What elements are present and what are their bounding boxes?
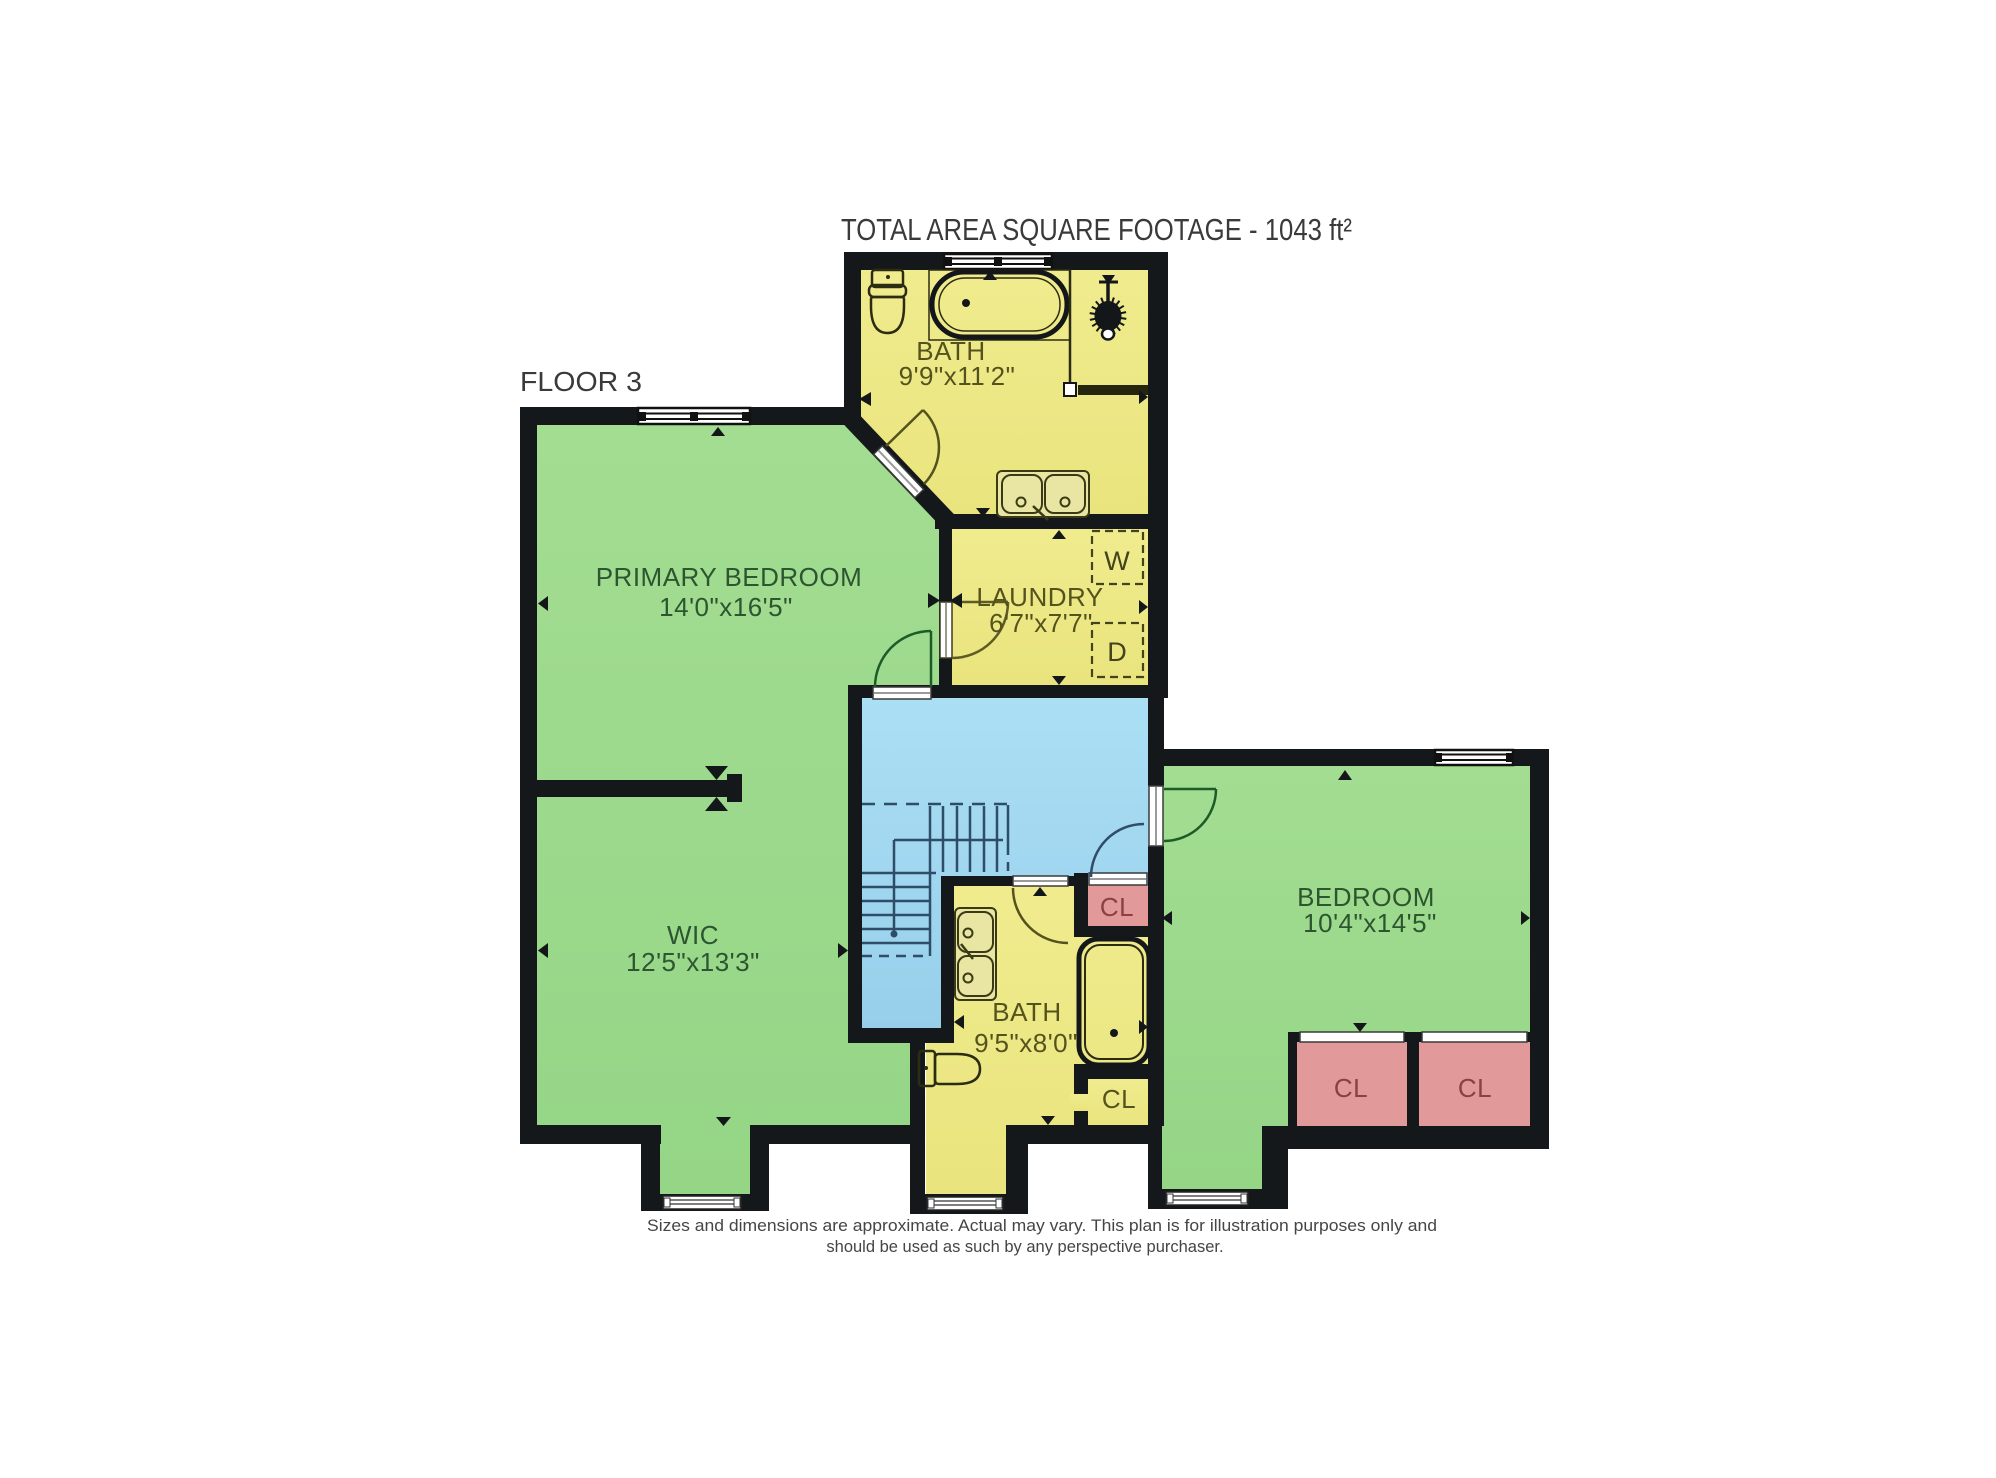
svg-text:10'4"x14'5": 10'4"x14'5" — [1303, 908, 1437, 938]
svg-text:PRIMARY BEDROOM: PRIMARY BEDROOM — [596, 562, 863, 592]
svg-text:CL: CL — [1102, 1084, 1136, 1114]
svg-text:BATH: BATH — [992, 997, 1061, 1027]
svg-text:D: D — [1107, 637, 1127, 667]
svg-text:should be used as such by any: should be used as such by any perspectiv… — [826, 1238, 1223, 1256]
svg-text:FLOOR 3: FLOOR 3 — [520, 366, 642, 397]
svg-text:WIC: WIC — [667, 920, 719, 950]
svg-text:CL: CL — [1100, 892, 1134, 922]
svg-text:TOTAL AREA SQUARE FOOTAGE - 10: TOTAL AREA SQUARE FOOTAGE - 1043 ft² — [841, 212, 1352, 247]
svg-text:9'9"x11'2": 9'9"x11'2" — [899, 361, 1016, 391]
svg-text:12'5"x13'3": 12'5"x13'3" — [626, 947, 760, 977]
svg-text:CL: CL — [1458, 1073, 1492, 1103]
svg-text:CL: CL — [1334, 1073, 1368, 1103]
svg-text:Sizes and dimensions are appro: Sizes and dimensions are approximate. Ac… — [647, 1217, 1437, 1235]
svg-text:W: W — [1104, 546, 1130, 576]
svg-text:9'5"x8'0": 9'5"x8'0" — [974, 1028, 1078, 1058]
svg-text:14'0"x16'5": 14'0"x16'5" — [659, 592, 793, 622]
svg-text:6'7"x7'7": 6'7"x7'7" — [989, 608, 1093, 638]
